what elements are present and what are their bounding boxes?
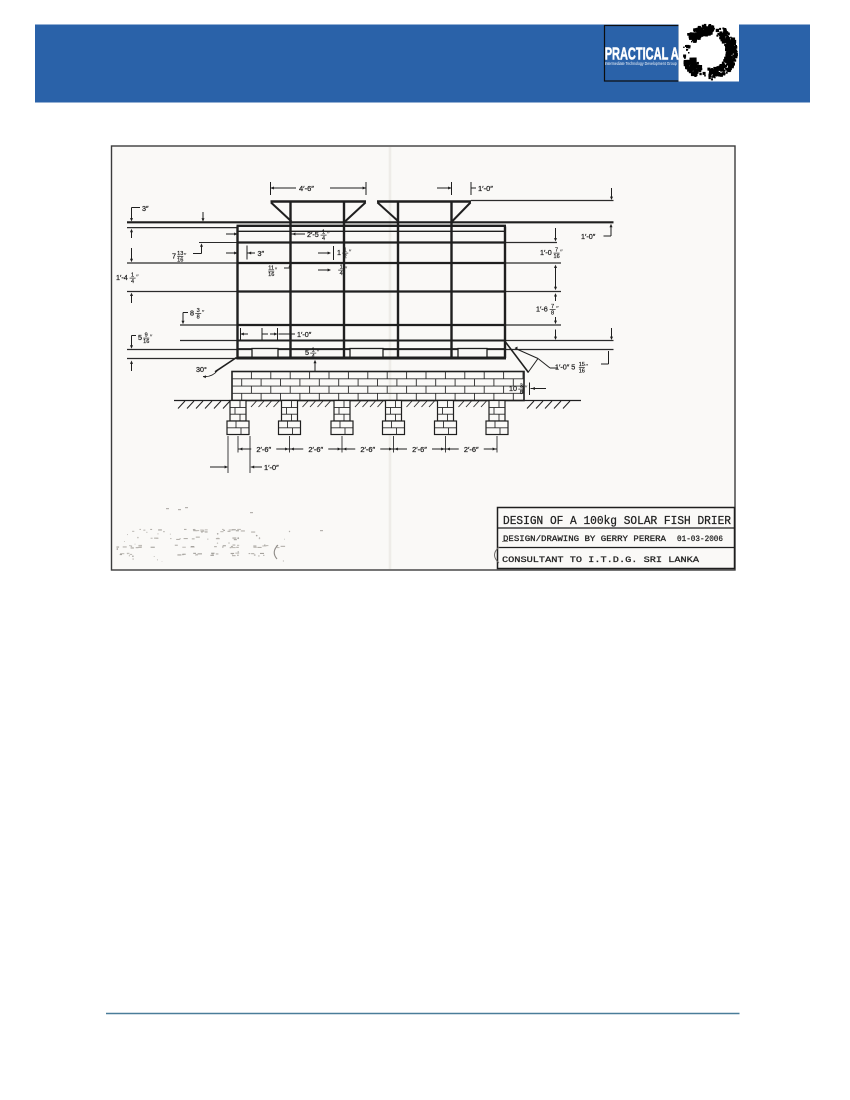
svg-text:″: ″ xyxy=(275,266,278,275)
svg-text:5: 5 xyxy=(138,333,142,342)
svg-text:1: 1 xyxy=(337,248,341,257)
svg-text:″: ″ xyxy=(184,251,187,260)
svg-text:2′-6″: 2′-6″ xyxy=(360,445,375,454)
svg-text:2′-6″: 2′-6″ xyxy=(412,445,427,454)
svg-text:8: 8 xyxy=(520,390,523,396)
svg-text:CONSULTANT TO I.T.D.G. SRI LAN: CONSULTANT TO I.T.D.G. SRI LANKA xyxy=(502,556,699,565)
svg-text:DESIGN OF A 100kg SOLAR FISH D: DESIGN OF A 100kg SOLAR FISH DRIER xyxy=(503,514,731,528)
svg-text:″: ″ xyxy=(560,248,563,257)
svg-text:4′-6″: 4′-6″ xyxy=(299,184,314,193)
svg-text:DESIGN/DRAWING BY GERRY PERERA: DESIGN/DRAWING BY GERRY PERERA xyxy=(503,534,666,544)
svg-text:7: 7 xyxy=(172,252,176,261)
svg-text:10: 10 xyxy=(509,384,517,393)
svg-text:1′-0″ 5: 1′-0″ 5 xyxy=(555,363,575,372)
svg-text:2′-5: 2′-5 xyxy=(307,230,319,239)
svg-text:″: ″ xyxy=(150,333,153,342)
svg-text:″: ″ xyxy=(556,304,559,313)
svg-text:″: ″ xyxy=(525,384,528,393)
svg-text:4: 4 xyxy=(312,354,315,360)
svg-text:1′-4: 1′-4 xyxy=(116,273,128,282)
svg-text:16: 16 xyxy=(143,339,149,345)
svg-text:1′-0″: 1′-0″ xyxy=(264,463,279,472)
svg-text:8: 8 xyxy=(190,309,194,318)
svg-text:1′-0″: 1′-0″ xyxy=(478,184,493,193)
svg-text:5: 5 xyxy=(305,348,309,357)
svg-text:8: 8 xyxy=(197,314,200,320)
svg-text:2′-6″: 2′-6″ xyxy=(256,445,271,454)
svg-text:Intermediate Technology Develo: Intermediate Technology Development Grou… xyxy=(605,61,678,66)
svg-text:1′-0: 1′-0 xyxy=(540,248,552,257)
svg-text:4: 4 xyxy=(322,236,325,242)
svg-text:16: 16 xyxy=(268,272,274,278)
svg-text:″: ″ xyxy=(585,362,588,371)
svg-text:″: ″ xyxy=(136,273,139,282)
svg-text:16: 16 xyxy=(553,254,559,260)
svg-text:8: 8 xyxy=(551,310,554,316)
svg-text:3″: 3″ xyxy=(142,204,149,213)
svg-text:″: ″ xyxy=(202,308,205,317)
svg-text:″: ″ xyxy=(345,265,348,274)
svg-text:4: 4 xyxy=(340,271,343,277)
svg-text:30°: 30° xyxy=(196,365,207,374)
svg-text:2′-6″: 2′-6″ xyxy=(464,445,479,454)
svg-text:3″: 3″ xyxy=(258,249,265,258)
svg-text:1′-6: 1′-6 xyxy=(536,305,548,314)
svg-text:″: ″ xyxy=(317,348,320,357)
svg-text:2: 2 xyxy=(344,254,347,260)
svg-text:16: 16 xyxy=(579,368,585,374)
svg-text:1′-0″: 1′-0″ xyxy=(581,232,596,241)
svg-text:2′-6″: 2′-6″ xyxy=(308,445,323,454)
svg-text:1′-0″: 1′-0″ xyxy=(297,330,312,339)
svg-text:″: ″ xyxy=(327,230,330,239)
svg-text:16: 16 xyxy=(177,257,183,263)
svg-text:01-03-2006: 01-03-2006 xyxy=(677,535,723,544)
svg-text:4: 4 xyxy=(131,279,134,285)
svg-text:″: ″ xyxy=(349,248,352,257)
